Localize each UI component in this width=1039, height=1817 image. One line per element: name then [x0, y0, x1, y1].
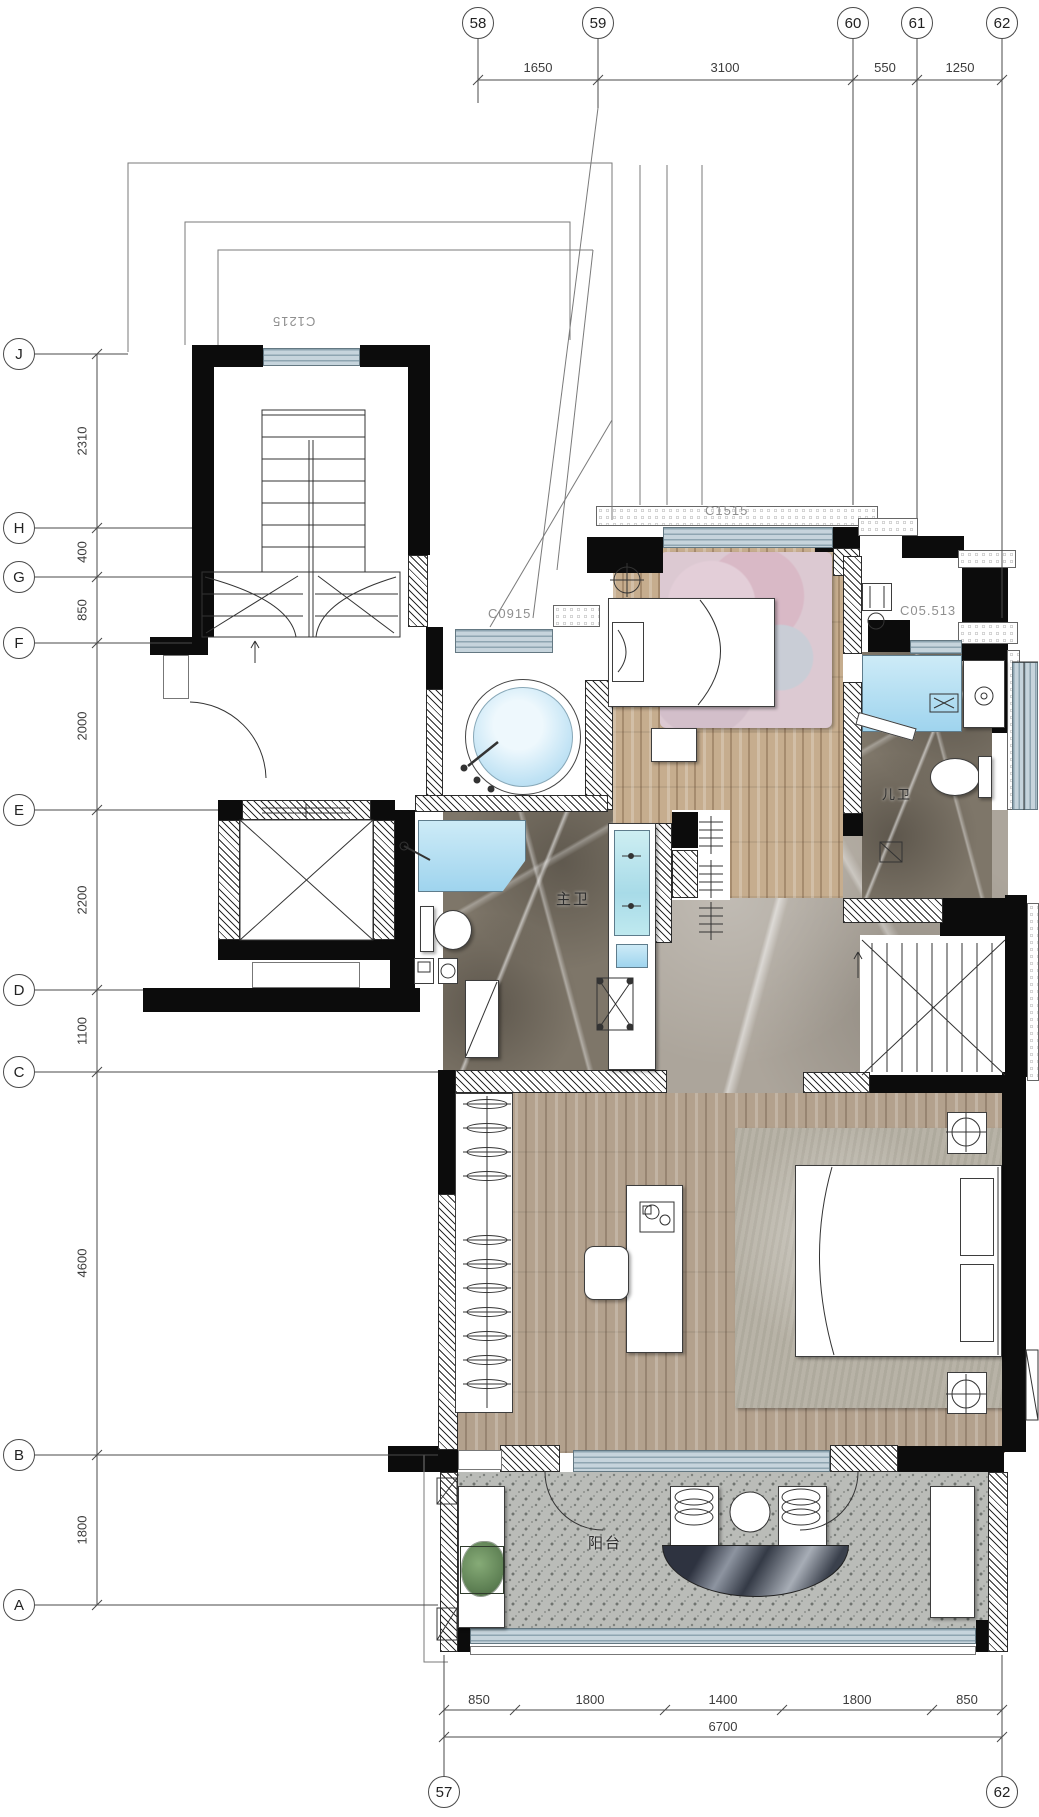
- dim-bottom-total: 6700: [709, 1719, 738, 1734]
- grid-lines: [35, 39, 1007, 1776]
- grid-bubble-62b: 62: [986, 1776, 1018, 1808]
- grid-bubble-label: 62: [994, 15, 1011, 32]
- window-tag-c0513: C05.513: [900, 603, 956, 618]
- dim-left-1: 2310: [75, 427, 90, 456]
- grid-bubble-D: D: [3, 974, 35, 1006]
- grid-bubble-62: 62: [986, 7, 1018, 39]
- window-tag-c1515: C1515: [705, 503, 748, 518]
- grid-bubble-E: E: [3, 794, 35, 826]
- dim-left-3: 850: [75, 599, 90, 621]
- dim-left-6: 1100: [75, 1017, 90, 1045]
- dim-left-7: 4600: [75, 1249, 90, 1278]
- dim-top-2: 3100: [711, 60, 740, 75]
- fixture-symbols: [400, 563, 1038, 1640]
- balcony-furniture-lines: [675, 1489, 820, 1532]
- dim-bottom-3: 1400: [709, 1692, 738, 1707]
- grid-bubble-G: G: [3, 561, 35, 593]
- elevator-x: [240, 820, 373, 940]
- grid-bubble-label: F: [14, 635, 23, 652]
- grid-bubble-label: H: [14, 520, 25, 537]
- dim-left-8: 1800: [75, 1516, 90, 1545]
- grid-bubble-label: 58: [470, 15, 487, 32]
- room-label-master-bath: 主卫: [556, 888, 590, 909]
- dim-left-5: 2200: [75, 886, 90, 915]
- grid-bubble-label: C: [14, 1064, 25, 1081]
- grid-bubble-57: 57: [428, 1776, 460, 1808]
- shelf-stacks: [699, 816, 723, 940]
- floor-plan: 58 59 60 61 62 J H G F E D C B A 57 62 1…: [0, 0, 1039, 1817]
- grid-bubble-label: J: [15, 346, 23, 363]
- dim-bottom-4: 1800: [843, 1692, 872, 1707]
- dim-bottom-2: 1800: [576, 1692, 605, 1707]
- grid-bubble-label: 61: [909, 15, 926, 32]
- dim-top-4: 1250: [946, 60, 975, 75]
- dim-left-2: 400: [75, 541, 90, 563]
- grid-bubble-label: E: [14, 802, 24, 819]
- grid-bubble-58: 58: [462, 7, 494, 39]
- window-tag-c1215: C1215: [272, 314, 315, 329]
- grid-bubble-label: 60: [845, 15, 862, 32]
- grid-bubble-C: C: [3, 1056, 35, 1088]
- dim-bottom-1: 850: [468, 1692, 490, 1707]
- dim-top-1: 1650: [524, 60, 553, 75]
- door-swings: [190, 702, 858, 1530]
- stairwell-detail: [202, 410, 400, 663]
- dim-left-4: 2000: [75, 712, 90, 741]
- interior-stair: [854, 940, 1005, 1075]
- dim-bottom-5: 850: [956, 1692, 978, 1707]
- room-label-balcony: 阳台: [588, 1532, 622, 1553]
- grid-bubble-label: 57: [436, 1784, 453, 1801]
- grid-bubble-A: A: [3, 1589, 35, 1621]
- grid-bubble-B: B: [3, 1439, 35, 1471]
- wardrobe-hangers: [463, 1096, 511, 1408]
- bed-linework: [618, 600, 998, 1355]
- grid-bubble-H: H: [3, 512, 35, 544]
- window-tag-c0915: C0915: [488, 606, 531, 621]
- grid-bubble-label: 62: [994, 1784, 1011, 1801]
- room-label-kids-bath: 儿卫: [882, 784, 912, 803]
- grid-bubble-label: A: [14, 1597, 24, 1614]
- grid-bubble-label: D: [14, 982, 25, 999]
- grid-bubble-59: 59: [582, 7, 614, 39]
- grid-bubble-F: F: [3, 627, 35, 659]
- dim-top-3: 550: [874, 60, 896, 75]
- grid-bubble-label: B: [14, 1447, 24, 1464]
- grid-bubble-J: J: [3, 338, 35, 370]
- grid-bubble-label: 59: [590, 15, 607, 32]
- grid-bubble-label: G: [13, 569, 25, 586]
- grid-bubble-61: 61: [901, 7, 933, 39]
- linework-layer: [0, 0, 1039, 1817]
- roof-outline: [128, 108, 702, 1662]
- grid-bubble-60: 60: [837, 7, 869, 39]
